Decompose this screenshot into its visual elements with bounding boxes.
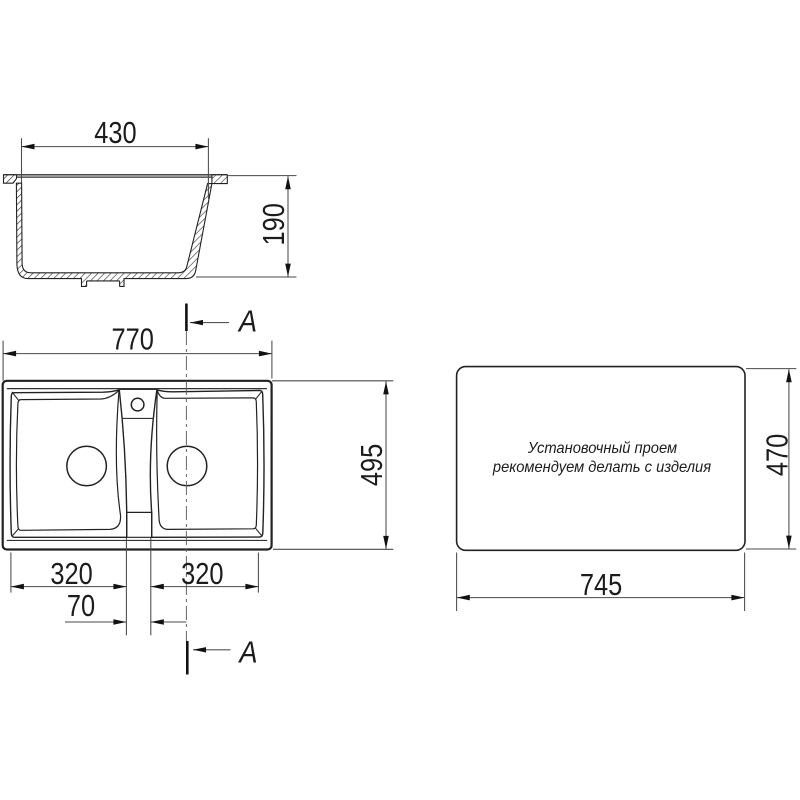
svg-text:320: 320: [181, 556, 223, 591]
svg-text:745: 745: [580, 567, 622, 602]
svg-text:770: 770: [112, 322, 154, 357]
svg-text:430: 430: [94, 116, 136, 151]
svg-text:495: 495: [355, 444, 390, 486]
svg-text:70: 70: [67, 589, 95, 624]
svg-text:190: 190: [257, 203, 292, 245]
svg-text:рекомендуем делать с изделия: рекомендуем делать с изделия: [492, 458, 711, 476]
svg-text:470: 470: [760, 434, 795, 476]
svg-text:A: A: [237, 305, 257, 339]
svg-text:Установочный проем: Установочный проем: [527, 439, 678, 457]
svg-text:A: A: [238, 636, 258, 670]
svg-text:320: 320: [50, 556, 92, 591]
